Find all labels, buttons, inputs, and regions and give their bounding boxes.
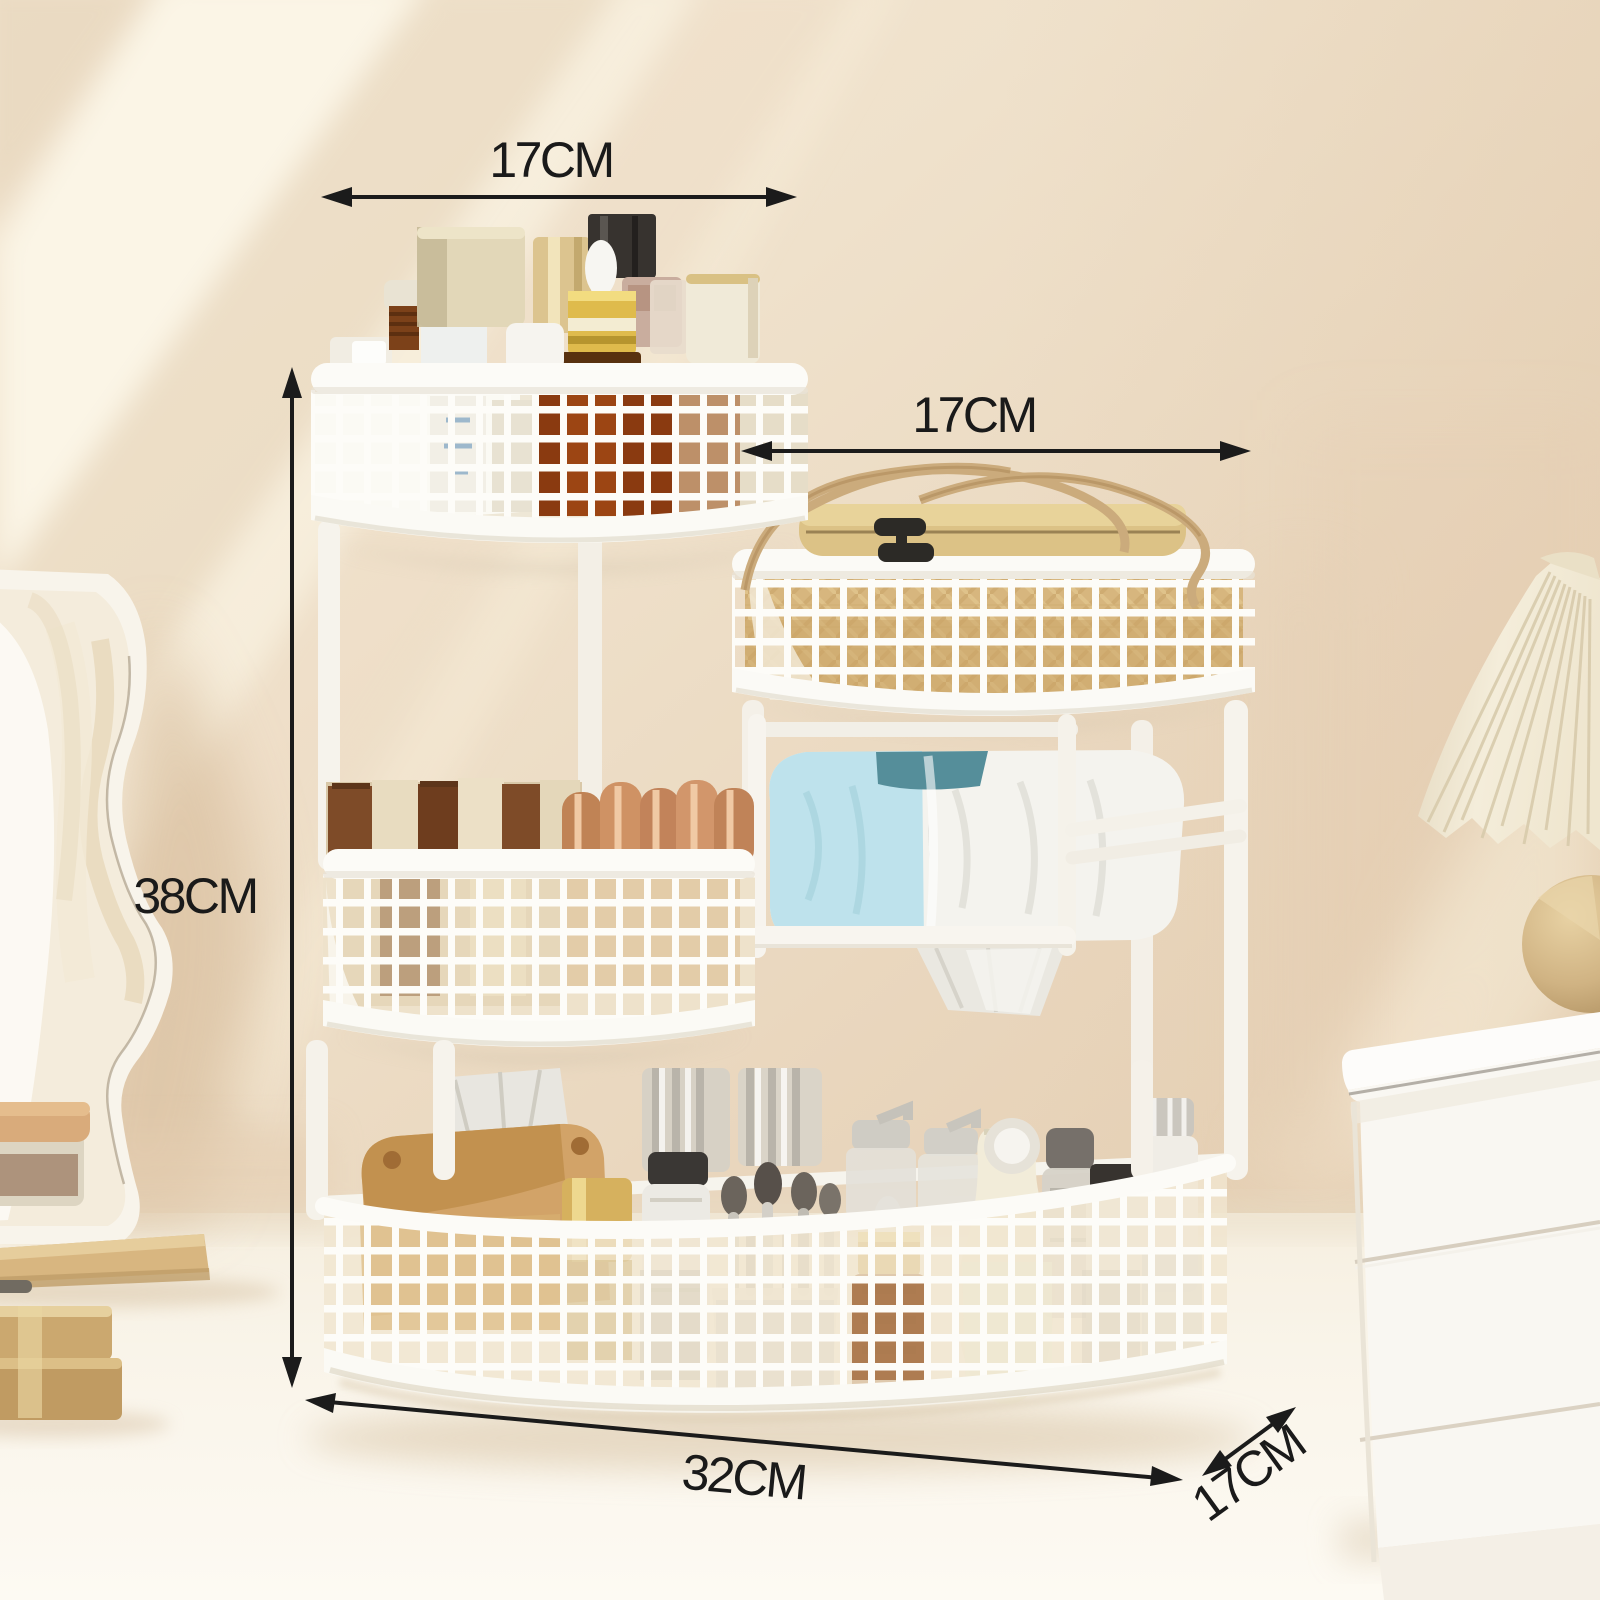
- svg-text:17CM: 17CM: [912, 387, 1035, 443]
- svg-text:38CM: 38CM: [133, 868, 256, 924]
- svg-text:32CM: 32CM: [680, 1444, 808, 1511]
- svg-text:17CM: 17CM: [489, 132, 612, 188]
